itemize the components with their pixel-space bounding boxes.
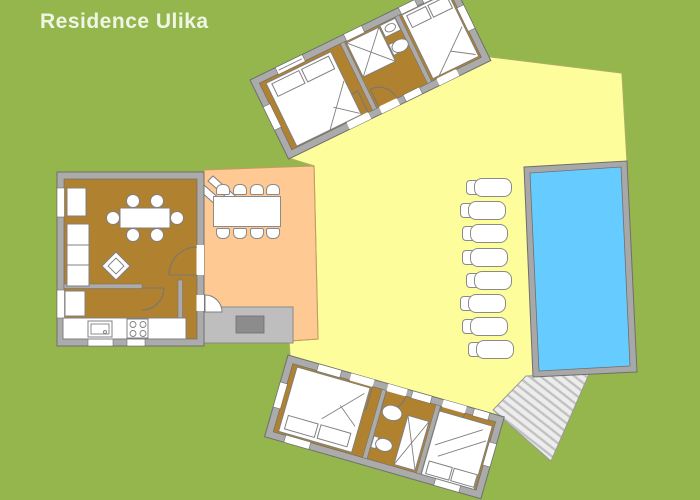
patio-chair xyxy=(266,228,280,239)
patio-chair xyxy=(250,228,264,239)
patio-chair xyxy=(250,184,264,195)
background-grass: Residence Ulika xyxy=(0,0,700,500)
patio-chair xyxy=(216,228,230,239)
patio-chair xyxy=(266,184,280,195)
patio-chair xyxy=(216,184,230,195)
outdoor-dining-area xyxy=(0,0,700,500)
outdoor-dining-table xyxy=(213,196,281,227)
patio-chair xyxy=(233,184,247,195)
patio-chair xyxy=(233,228,247,239)
